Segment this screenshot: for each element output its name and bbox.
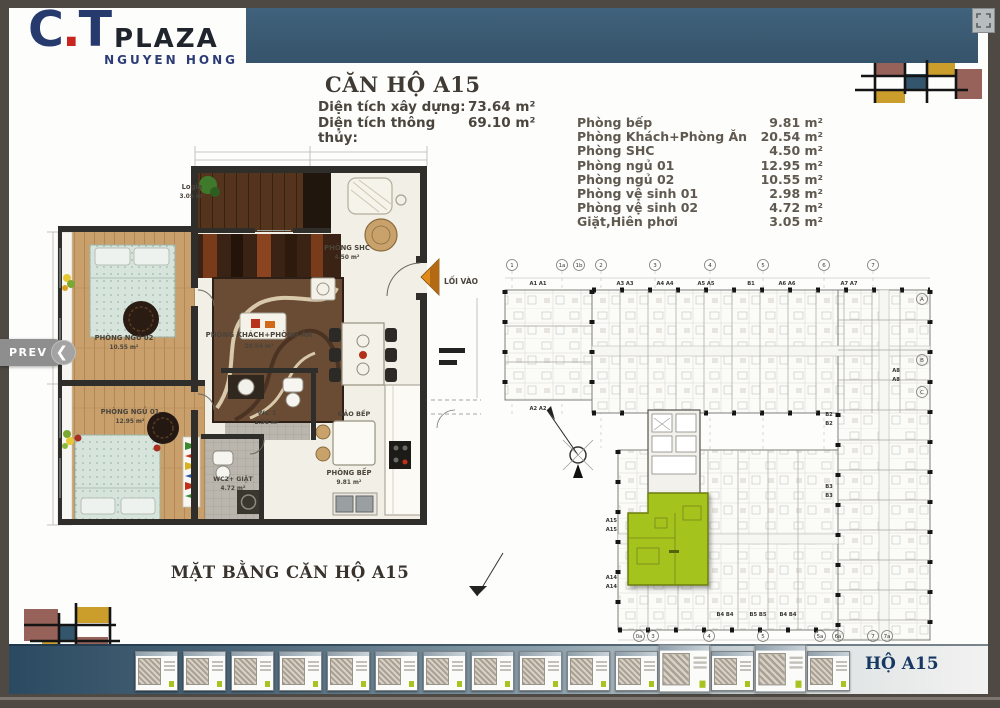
svg-text:C: C	[920, 390, 924, 396]
table-row: Phòng vệ sinh 024.72 m²	[577, 201, 823, 215]
svg-text:A6 A6: A6 A6	[778, 281, 795, 287]
thumb-plan-image	[662, 653, 690, 685]
room-label-island: ĐẢO BẾP	[338, 408, 371, 418]
thumb-plan-image	[378, 658, 401, 685]
room-area-logia: 3.05 m²	[180, 193, 205, 200]
svg-text:A3 A3: A3 A3	[616, 281, 633, 287]
svg-text:B3: B3	[825, 493, 833, 499]
thumb-highlight-dot	[841, 681, 846, 687]
svg-text:B4 B4: B4 B4	[780, 612, 797, 618]
thumb-plan-image	[758, 653, 786, 685]
plan-caption: MẶT BẰNG CĂN HỘ A15	[140, 563, 440, 582]
room-area-shc: 4.50 m²	[335, 254, 360, 261]
svg-text:7a: 7a	[884, 634, 891, 640]
svg-text:7: 7	[871, 634, 875, 640]
svg-text:A8: A8	[892, 368, 900, 374]
room-label-bed2: PHÒNG NGỦ 02	[95, 332, 154, 342]
thumbnail[interactable]	[567, 651, 610, 691]
room-area-bed1: 12.95 m²	[116, 418, 145, 425]
prev-label: PREV	[9, 346, 48, 359]
thumb-plan-image	[138, 658, 161, 685]
room-label-living: PHÒNG KHÁCH+PHÒNG ĂN	[206, 330, 313, 339]
expand-icon	[976, 13, 991, 28]
thumb-highlight-dot	[457, 681, 462, 687]
thumb-highlight-dot	[361, 681, 366, 687]
thumb-plan-image	[618, 658, 641, 685]
table-row: Giặt,Hiên phơi3.05 m²	[577, 215, 823, 229]
thumb-highlight-dot	[649, 681, 654, 687]
svg-text:5: 5	[761, 634, 765, 640]
table-row: Phòng ngủ 0210.55 m²	[577, 173, 823, 187]
thumb-plan-image	[522, 658, 545, 685]
header-band	[246, 8, 978, 63]
svg-text:6a: 6a	[835, 634, 842, 640]
svg-text:A5 A5: A5 A5	[697, 281, 714, 287]
thumbnail[interactable]	[755, 645, 807, 693]
svg-text:A2 A2: A2 A2	[529, 406, 546, 412]
building-blocks	[505, 290, 930, 640]
thumbnail-strip[interactable]	[135, 651, 850, 691]
viewer-window: C.T PLAZA NGUYEN HONG	[0, 0, 1000, 708]
thumb-highlight-dot	[169, 681, 174, 687]
thumb-highlight-dot	[745, 681, 750, 687]
thumb-highlight-dot	[601, 681, 606, 687]
svg-text:B3: B3	[825, 484, 833, 490]
brand-logo: C.T PLAZA NGUYEN HONG	[28, 8, 238, 72]
room-label-kitchen: PHÒNG BẾP	[327, 467, 372, 477]
thumbnail[interactable]	[135, 651, 178, 691]
thumb-plan-image	[186, 658, 209, 685]
thumb-highlight-dot	[217, 681, 222, 687]
table-row: Phòng SHC4.50 m²	[577, 144, 823, 158]
thumbnail[interactable]	[471, 651, 514, 691]
thumb-plan-image	[714, 658, 737, 685]
svg-text:3: 3	[653, 263, 657, 269]
spec-value: 73.64 m²	[468, 100, 535, 116]
room-area-wc1: 2.98 m²	[255, 419, 280, 426]
thumb-highlight-dot	[313, 681, 318, 687]
svg-text:A14: A14	[606, 584, 618, 590]
svg-text:4: 4	[707, 634, 711, 640]
bed2-furniture	[90, 245, 175, 337]
prev-button[interactable]: PREV ❮	[0, 339, 67, 366]
svg-text:A4 A4: A4 A4	[656, 281, 673, 287]
thumb-highlight-dot	[505, 681, 510, 687]
svg-text:0a: 0a	[636, 634, 643, 640]
svg-text:1: 1	[510, 263, 514, 269]
svg-text:A8: A8	[892, 377, 900, 383]
logo-plaza: PLAZA	[114, 26, 219, 52]
side-table	[311, 278, 335, 300]
room-area-kitchen: 9.81 m²	[337, 479, 362, 486]
compass-icon	[547, 406, 593, 478]
table-row: Phòng bếp9.81 m²	[577, 116, 823, 130]
svg-text:6: 6	[822, 263, 826, 269]
section-cut-icon	[469, 553, 503, 596]
mondrian-decoration-top	[855, 60, 983, 106]
dining-set	[329, 323, 397, 385]
thumb-plan-image	[282, 658, 305, 685]
thumbnail[interactable]	[279, 651, 322, 691]
svg-text:1b: 1b	[576, 263, 583, 269]
thumbnail[interactable]	[183, 651, 226, 691]
svg-text:4: 4	[708, 263, 712, 269]
svg-text:2: 2	[599, 263, 603, 269]
room-label-logia: Logia	[182, 183, 203, 191]
frame-strip	[0, 697, 1000, 700]
svg-text:A7 A7: A7 A7	[840, 281, 857, 287]
table-row: Phòng vệ sinh 012.98 m²	[577, 187, 823, 201]
svg-text:1a: 1a	[559, 263, 566, 269]
thumb-highlight-dot	[409, 681, 414, 687]
svg-text:5a: 5a	[817, 634, 824, 640]
svg-text:B: B	[920, 358, 924, 364]
table-row: Phòng ngủ 0112.95 m²	[577, 159, 823, 173]
svg-text:B2: B2	[825, 412, 833, 418]
thumb-plan-image	[330, 658, 353, 685]
svg-text:A1 A1: A1 A1	[529, 281, 546, 287]
thumb-highlight-dot	[265, 681, 270, 687]
thumb-plan-image	[810, 658, 833, 685]
svg-text:3: 3	[651, 634, 655, 640]
thumbnail[interactable]	[327, 651, 370, 691]
thumbnail[interactable]	[711, 651, 754, 691]
thumb-plan-image	[474, 658, 497, 685]
svg-text:7: 7	[871, 263, 875, 269]
room-label-wc1: WC 1	[258, 409, 277, 417]
thumbnail[interactable]	[659, 645, 711, 693]
svg-text:5: 5	[761, 263, 765, 269]
thumb-plan-image	[570, 658, 593, 685]
elevator-core	[648, 410, 700, 498]
svg-text:A15: A15	[606, 527, 618, 533]
svg-text:B1: B1	[747, 281, 755, 287]
thumbnail[interactable]	[807, 651, 850, 691]
svg-text:A14: A14	[606, 575, 618, 581]
spec-label: Diện tích xây dựng:	[318, 100, 468, 116]
fullscreen-button[interactable]	[972, 8, 995, 33]
logo-red-dot: .	[62, 1, 79, 58]
mondrian-decoration-bottom	[16, 600, 136, 648]
room-label-bed1: PHÒNG NGỦ 01	[101, 406, 160, 416]
thumb-highlight-dot	[700, 681, 706, 688]
thumb-plan-image	[426, 658, 449, 685]
svg-text:A15: A15	[606, 518, 618, 524]
grid-bubbles-top: 1 1a 1b 2 3 4 5 6 7	[507, 260, 879, 271]
thumb-highlight-dot	[796, 681, 802, 688]
logo-ct: C.T	[28, 8, 110, 52]
room-area-bed2: 10.55 m²	[110, 344, 139, 351]
apartment-floor-plan: LỐI VÀO Logia 3.05 m² PHÒNG SHC 4.50 m² …	[45, 138, 485, 568]
svg-text:B2: B2	[825, 421, 833, 427]
svg-text:B4 B4: B4 B4	[717, 612, 734, 618]
room-label-wc2: WC2+ GIẶT	[213, 474, 253, 483]
site-plan: 1 1a 1b 2 3 4 5 6 7 0a 3 4 5 5a 6a 7 7a	[455, 248, 985, 648]
thumb-plan-image	[234, 658, 257, 685]
room-label-shc: PHÒNG SHC	[324, 243, 370, 252]
svg-text:A: A	[920, 297, 924, 303]
chevron-left-icon[interactable]: ❮	[51, 340, 76, 365]
page-title: CĂN HỘ A15	[325, 72, 480, 97]
svg-text:B5 B5: B5 B5	[750, 612, 767, 618]
thumb-highlight-dot	[553, 681, 558, 687]
active-page-label: HỘ A15	[865, 654, 939, 674]
thumbnail[interactable]	[615, 651, 658, 691]
thumbnail[interactable]	[423, 651, 466, 691]
table-row: Phòng Khách+Phòng Ăn20.54 m²	[577, 130, 823, 144]
room-area-living: 20.54 m²	[245, 343, 274, 350]
room-area-wc2: 4.72 m²	[221, 485, 246, 492]
thumbnail[interactable]	[375, 651, 418, 691]
room-area-table: Phòng bếp9.81 m² Phòng Khách+Phòng Ăn20.…	[577, 116, 823, 230]
thumbnail[interactable]	[519, 651, 562, 691]
thumbnail[interactable]	[231, 651, 274, 691]
